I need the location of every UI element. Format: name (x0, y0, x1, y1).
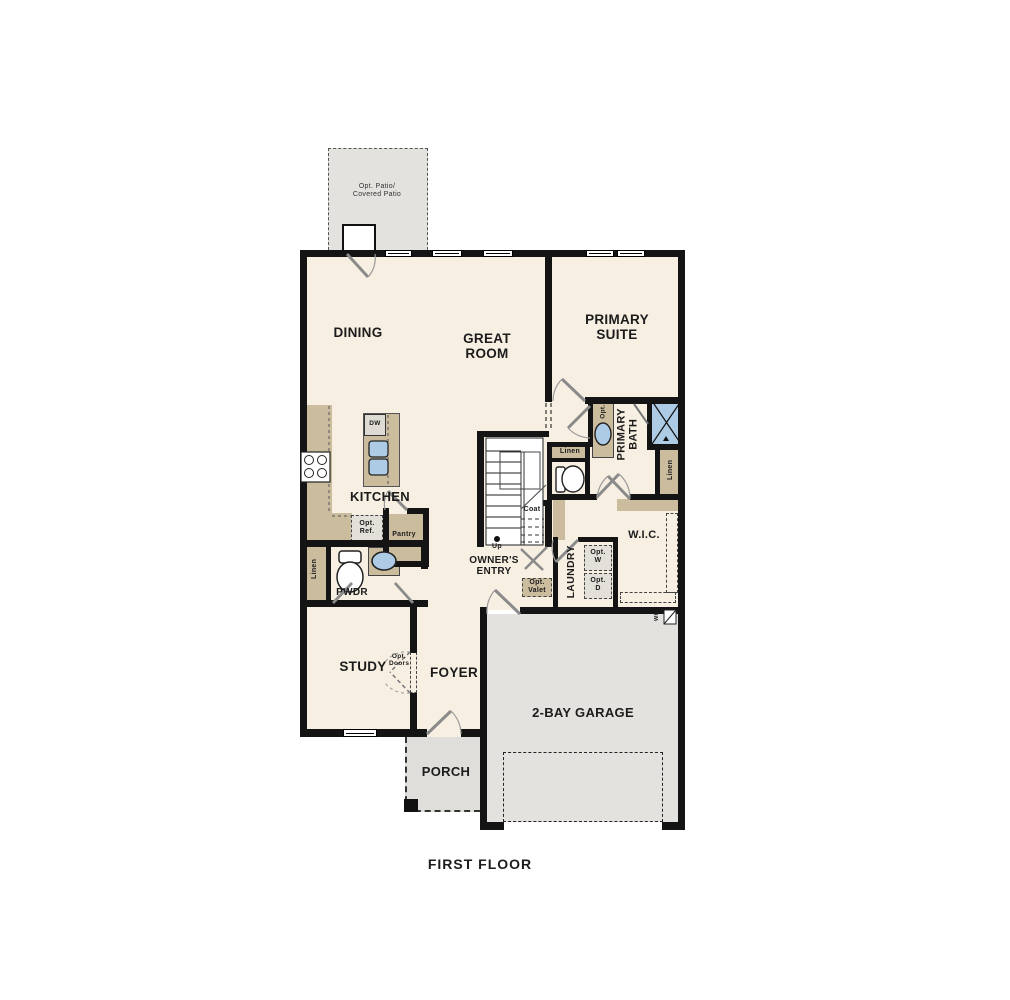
wall-garage-left (480, 607, 487, 830)
wall-linen-wic-left (655, 450, 660, 495)
dw-label: DW (364, 420, 386, 427)
primary-suite-label: PRIMARY SUITE (577, 312, 657, 342)
wall-foyer-bottom (461, 729, 480, 737)
wall-linen-top (547, 442, 588, 447)
wic-shelf-bottom (620, 592, 676, 603)
wall-pwdr-top (300, 540, 429, 547)
wall-laundry-top (578, 537, 618, 542)
wall-stairs-left (477, 437, 484, 547)
floor-plan: Opt. Patio/ Covered Patio DINING GREAT R… (0, 0, 1010, 1000)
wic-rod-right (666, 513, 678, 593)
linen-pwdr-label: Linen (311, 549, 319, 589)
porch-post (404, 799, 418, 812)
kitchen-counter-leg (307, 513, 352, 540)
wall-study-right-a (410, 607, 417, 653)
wall-study-right-b (410, 693, 417, 736)
opt-doors-label: Opt. Doors (389, 653, 409, 668)
wic-shelf-top (617, 499, 678, 511)
wall-exterior-right (678, 250, 685, 830)
opt-vanity-label: Opt. (599, 403, 606, 421)
window (617, 250, 645, 257)
water-heater-label: WH (654, 609, 660, 623)
wic-label: W.I.C. (614, 529, 674, 541)
opt-washer-label: Opt. W (590, 549, 606, 565)
coat-label: Coat (518, 506, 546, 514)
wall-shower-left (647, 399, 652, 447)
window (483, 250, 513, 257)
wall-laundry-right (613, 537, 618, 607)
pantry-label: Pantry (386, 531, 422, 539)
wall-garage-bottom-b (662, 822, 685, 830)
opt-doors-panel (410, 652, 417, 693)
wall-pwdr-right (421, 547, 428, 569)
wall-study-bottom-b (377, 729, 427, 737)
first-floor-title: FIRST FLOOR (400, 857, 560, 873)
primary-bath-label: PRIMARY BATH (616, 394, 641, 474)
porch-label: PORCH (411, 765, 481, 780)
opt-ref-label: Opt. Ref. (358, 520, 376, 536)
wall-pwdr-bottom (300, 600, 428, 607)
wall-linen-bottom (547, 458, 588, 462)
great-room-label: GREAT ROOM (457, 331, 517, 361)
garage-label: 2-BAY GARAGE (513, 706, 653, 721)
garage-door-recess (503, 752, 663, 822)
wall-laundry-left (553, 537, 558, 607)
dining-label: DINING (318, 325, 398, 340)
wall-suite-divider (545, 250, 552, 402)
window (586, 250, 614, 257)
foyer-label: FOYER (419, 665, 489, 680)
wall-study-bottom-a (300, 729, 343, 737)
pwdr-label: PWDR (327, 587, 377, 598)
wall-shower-bottom (647, 445, 683, 450)
wall-garage-top (520, 607, 685, 614)
laundry-label: LAUNDRY (566, 542, 578, 602)
wall-exterior-left (300, 250, 307, 737)
wall-garage-bottom-a (480, 822, 504, 830)
wall-wic-top-b (630, 494, 685, 500)
owners-entry-label: OWNER'S ENTRY (462, 555, 526, 577)
wall-vanity-left (588, 402, 593, 447)
patio-landing (342, 224, 376, 251)
window (343, 729, 377, 737)
window (432, 250, 462, 257)
up-label: Up (487, 543, 507, 551)
linen-bath-label: Linen (552, 448, 588, 456)
kitchen-label: KITCHEN (340, 490, 420, 505)
opt-dryer-label: Opt. D (590, 577, 606, 593)
wic-shelf-left (553, 499, 565, 540)
wall-stairs-top (477, 431, 549, 437)
opt-valet-label: Opt. Valet (527, 579, 547, 595)
wall-wic-top-a (547, 494, 597, 500)
patio-label: Opt. Patio/ Covered Patio (345, 183, 409, 199)
wall-coat-right (545, 500, 552, 547)
linen-wic-label: Linen (667, 450, 675, 490)
window (385, 250, 412, 257)
